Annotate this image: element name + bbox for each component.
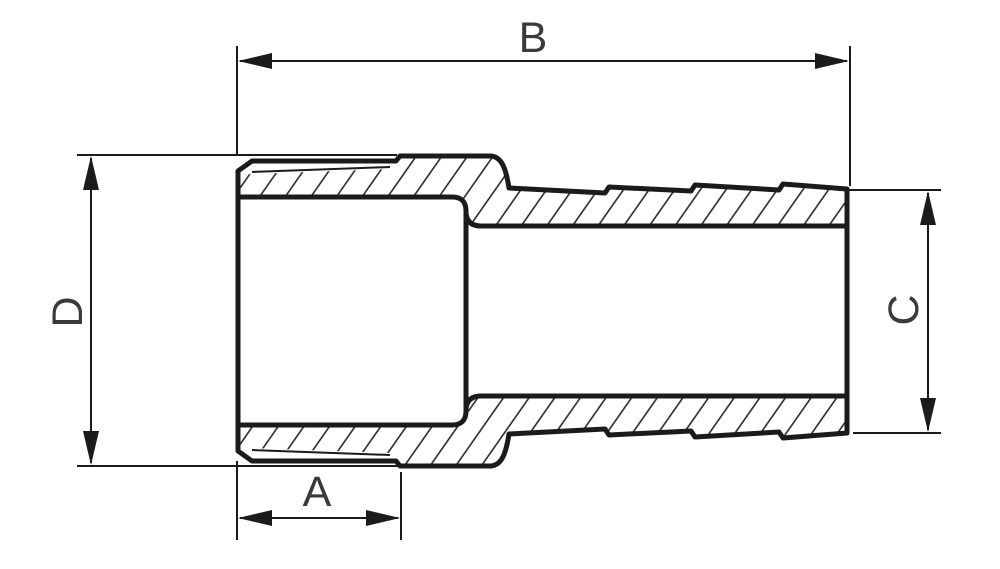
dimension-d-label: D (44, 296, 92, 327)
dimension-b-arrow-right (815, 53, 849, 69)
dimension-a-arrow-right (366, 510, 400, 526)
dimension-a-arrow-left (238, 510, 272, 526)
dimension-d: D (44, 155, 398, 466)
dimension-c-arrow-down (920, 398, 936, 432)
dimension-a: A (237, 461, 401, 540)
technical-drawing: B D C A (0, 0, 1000, 569)
dimension-c-arrow-up (920, 191, 936, 225)
bore-large-outline (238, 197, 466, 425)
dimension-d-arrow-down (83, 431, 99, 465)
drawing-canvas: B D C A (0, 0, 1000, 569)
dimension-c: C (838, 190, 941, 433)
dimension-c-label: C (880, 294, 928, 325)
dimension-a-label: A (303, 468, 332, 516)
dimension-d-arrow-up (83, 156, 99, 190)
fitting-section (238, 156, 847, 466)
dimension-b-label: B (519, 14, 548, 62)
dimension-b-arrow-left (238, 53, 272, 69)
